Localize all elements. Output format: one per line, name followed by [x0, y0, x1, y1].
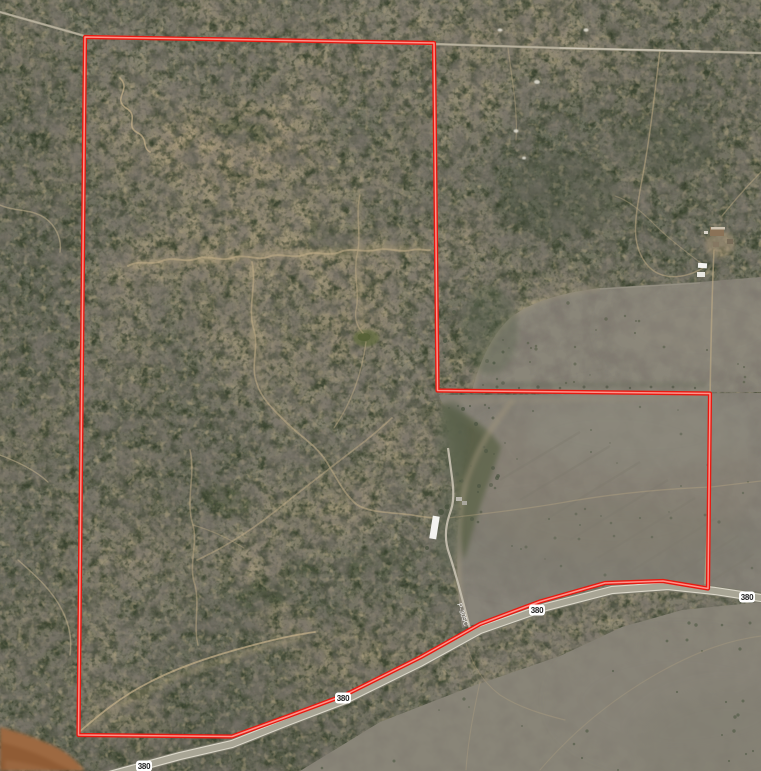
svg-text:380: 380: [138, 762, 151, 771]
svg-text:380: 380: [337, 694, 350, 703]
svg-text:380: 380: [741, 593, 754, 602]
svg-text:380: 380: [531, 606, 544, 615]
